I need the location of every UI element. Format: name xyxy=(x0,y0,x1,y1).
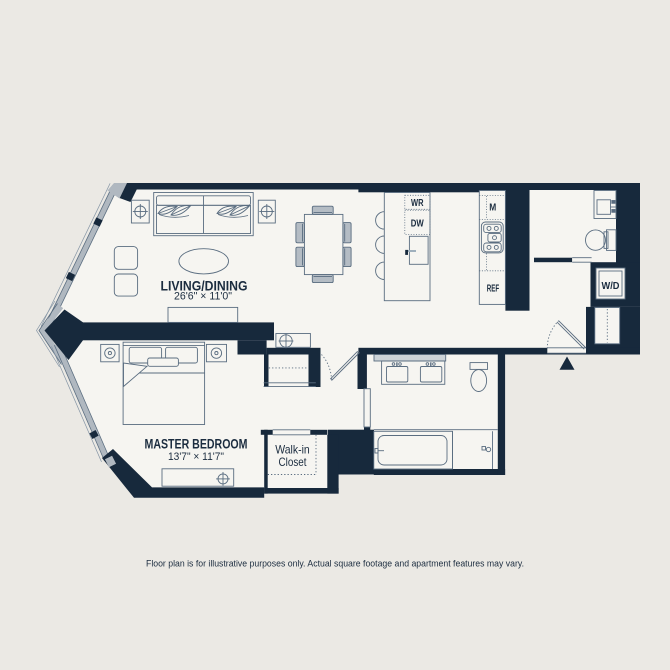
svg-text:MASTER BEDROOM: MASTER BEDROOM xyxy=(145,436,248,451)
svg-text:REF: REF xyxy=(487,284,500,295)
svg-text:Closet: Closet xyxy=(279,455,308,469)
svg-text:W/D: W/D xyxy=(602,281,620,292)
svg-text:WR: WR xyxy=(411,198,424,209)
svg-text:26'6" × 11'0": 26'6" × 11'0" xyxy=(174,291,232,303)
svg-text:13'7" × 11'7": 13'7" × 11'7" xyxy=(168,451,224,463)
svg-text:Floor plan is for illustrative: Floor plan is for illustrative purposes … xyxy=(146,559,524,570)
svg-text:DW: DW xyxy=(411,219,424,230)
svg-text:M: M xyxy=(489,203,496,214)
